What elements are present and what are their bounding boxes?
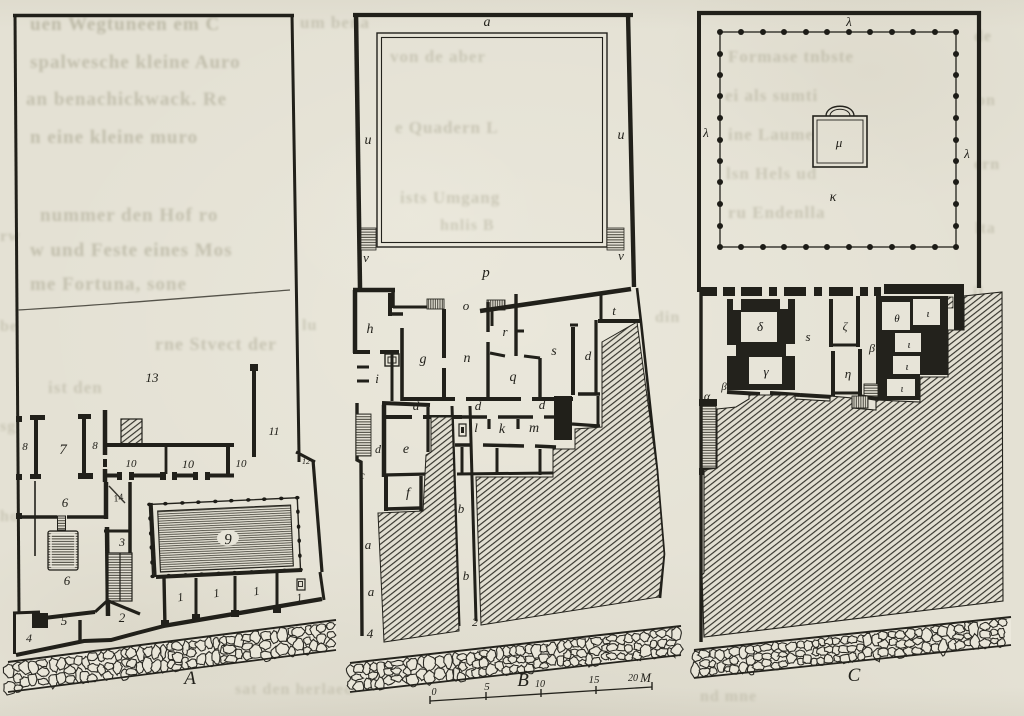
svg-text:1: 1 [176,590,184,605]
svg-text:11: 11 [268,424,279,438]
svg-text:q: q [510,370,517,385]
svg-text:14: 14 [112,492,124,505]
svg-text:4: 4 [367,626,374,641]
svg-text:a: a [368,584,375,599]
svg-text:f: f [406,486,412,501]
svg-text:C: C [848,665,861,686]
svg-text:g: g [420,352,427,367]
svg-text:8: 8 [92,440,98,452]
svg-text:8: 8 [22,441,28,453]
svg-text:v: v [618,248,624,263]
svg-text:4: 4 [26,631,32,645]
svg-text:n: n [464,351,471,366]
svg-text:η: η [845,366,851,381]
svg-text:a: a [365,537,372,552]
svg-text:c: c [359,468,365,482]
svg-text:v: v [363,250,369,265]
svg-text:h: h [367,322,374,337]
svg-text:u: u [618,128,625,143]
svg-text:15: 15 [589,674,601,686]
svg-text:5: 5 [61,613,68,628]
svg-text:γ: γ [763,364,769,379]
svg-text:r: r [502,324,508,339]
svg-text:l: l [474,420,478,435]
svg-text:ι: ι [907,339,910,351]
svg-text:o: o [463,298,470,313]
svg-text:β: β [868,341,875,355]
svg-text:b: b [463,568,470,583]
svg-text:λ: λ [702,125,709,140]
svg-text:10: 10 [126,458,138,470]
svg-text:δ: δ [757,319,764,334]
svg-text:θ: θ [894,313,900,325]
svg-text:d: d [585,348,592,363]
svg-text:ι: ι [901,384,904,395]
svg-text:13: 13 [146,370,160,385]
svg-text:u: u [365,133,372,148]
svg-text:β: β [720,381,727,393]
svg-text:d: d [475,398,482,413]
svg-text:1: 1 [252,584,260,599]
svg-text:10: 10 [236,458,248,470]
svg-text:a: a [484,15,491,30]
svg-text:7: 7 [59,442,68,458]
svg-text:10: 10 [535,679,545,690]
svg-text:M: M [639,670,652,685]
svg-text:9: 9 [224,532,233,548]
svg-text:6: 6 [62,495,69,510]
svg-text:ι: ι [905,361,908,373]
svg-text:ι: ι [926,308,929,320]
svg-text:λ: λ [963,146,970,161]
svg-text:λ: λ [845,14,852,29]
svg-text:1: 1 [212,586,220,601]
svg-text:i: i [375,371,379,386]
svg-text:ζ: ζ [843,319,849,333]
svg-text:d: d [539,397,546,412]
svg-text:d: d [375,442,382,456]
svg-text:e: e [403,442,409,457]
svg-text:p: p [481,265,490,281]
svg-text:m: m [529,421,539,436]
svg-text:0: 0 [432,687,437,698]
svg-text:20: 20 [628,673,638,684]
svg-text:10: 10 [182,457,194,471]
svg-text:b: b [458,501,465,516]
svg-text:3: 3 [118,535,125,549]
svg-text:12: 12 [302,457,310,466]
svg-text:5: 5 [484,681,490,693]
svg-text:1: 1 [296,592,303,605]
svg-text:B: B [517,670,529,691]
svg-text:s: s [805,329,810,344]
svg-text:6: 6 [64,573,71,588]
svg-text:κ: κ [830,190,837,205]
svg-text:2: 2 [472,615,478,629]
svg-text:A: A [182,668,196,689]
svg-text:s: s [551,344,557,359]
svg-text:t: t [612,303,616,318]
svg-text:2: 2 [119,610,126,625]
svg-text:μ: μ [835,135,843,150]
svg-text:k: k [499,422,506,437]
